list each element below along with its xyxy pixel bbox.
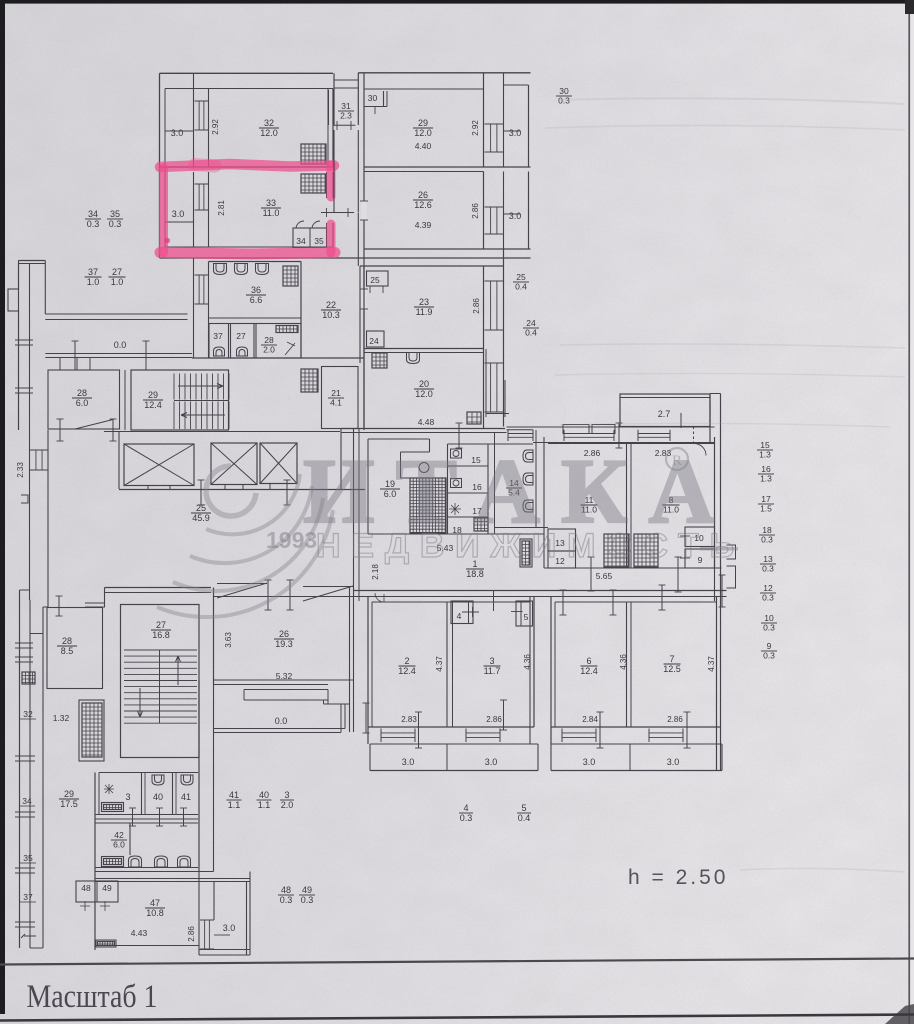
svg-text:1.3: 1.3 — [759, 450, 771, 460]
svg-text:25: 25 — [196, 503, 206, 513]
svg-text:9: 9 — [767, 641, 772, 651]
svg-text:1.0: 1.0 — [111, 277, 124, 287]
svg-text:37: 37 — [88, 267, 98, 277]
svg-text:16.8: 16.8 — [152, 630, 170, 640]
svg-text:3.0: 3.0 — [402, 757, 415, 767]
svg-text:29: 29 — [418, 118, 428, 128]
svg-text:1.1: 1.1 — [258, 800, 271, 810]
svg-text:22: 22 — [326, 300, 336, 310]
svg-text:R: R — [672, 453, 682, 469]
svg-text:12.0: 12.0 — [414, 128, 432, 138]
svg-text:32: 32 — [23, 709, 33, 719]
svg-text:34: 34 — [88, 209, 98, 219]
svg-text:4: 4 — [463, 803, 468, 813]
svg-text:25: 25 — [516, 272, 526, 282]
svg-text:0.4: 0.4 — [525, 328, 537, 338]
svg-text:16: 16 — [761, 464, 771, 474]
svg-text:0.3: 0.3 — [762, 564, 774, 574]
svg-text:4.36: 4.36 — [523, 654, 532, 670]
svg-text:28: 28 — [62, 636, 72, 646]
svg-text:41: 41 — [229, 790, 239, 800]
svg-text:4.43: 4.43 — [131, 928, 148, 938]
svg-text:0.3: 0.3 — [763, 623, 775, 633]
svg-text:2.0: 2.0 — [281, 800, 294, 810]
svg-text:18.8: 18.8 — [466, 569, 484, 579]
svg-text:35: 35 — [23, 853, 33, 863]
svg-text:2.7: 2.7 — [658, 409, 671, 419]
svg-text:12.0: 12.0 — [415, 389, 433, 399]
svg-text:24: 24 — [526, 318, 536, 328]
svg-text:4.1: 4.1 — [330, 398, 342, 408]
svg-text:3.0: 3.0 — [223, 923, 236, 933]
svg-text:19.3: 19.3 — [275, 639, 293, 649]
svg-text:48: 48 — [281, 885, 291, 895]
svg-text:11.9: 11.9 — [416, 307, 433, 317]
svg-text:12.4: 12.4 — [398, 666, 416, 676]
svg-text:3.0: 3.0 — [667, 757, 680, 767]
svg-text:24: 24 — [369, 336, 379, 346]
svg-text:8.5: 8.5 — [61, 646, 74, 656]
svg-text:0.0: 0.0 — [114, 340, 127, 350]
svg-text:2.84: 2.84 — [582, 715, 598, 724]
svg-text:3.63: 3.63 — [224, 632, 233, 648]
svg-text:5.32: 5.32 — [276, 671, 293, 681]
svg-text:2.86: 2.86 — [667, 715, 683, 724]
svg-text:35: 35 — [314, 236, 324, 246]
svg-text:2.81: 2.81 — [217, 200, 226, 216]
svg-text:4.48: 4.48 — [418, 417, 435, 427]
svg-text:1.1: 1.1 — [228, 800, 241, 810]
svg-text:0.3: 0.3 — [761, 535, 773, 545]
svg-text:11.7: 11.7 — [484, 666, 501, 676]
svg-text:1.5: 1.5 — [760, 504, 772, 514]
svg-text:2.92: 2.92 — [211, 119, 220, 135]
svg-text:47: 47 — [150, 898, 160, 908]
svg-text:5: 5 — [521, 803, 526, 813]
svg-text:3: 3 — [125, 792, 130, 802]
svg-text:28: 28 — [77, 388, 87, 398]
svg-text:12: 12 — [763, 583, 773, 593]
svg-text:30: 30 — [368, 93, 378, 103]
svg-text:2.83: 2.83 — [401, 715, 417, 724]
svg-text:0.4: 0.4 — [518, 813, 531, 823]
svg-text:6: 6 — [586, 656, 591, 666]
svg-text:3.0: 3.0 — [509, 211, 522, 221]
svg-text:37: 37 — [213, 331, 223, 341]
svg-text:49: 49 — [302, 885, 312, 895]
svg-text:29: 29 — [64, 789, 74, 799]
svg-text:0.3: 0.3 — [460, 813, 473, 823]
svg-text:6.0: 6.0 — [384, 489, 397, 499]
svg-text:10.3: 10.3 — [322, 310, 340, 320]
svg-text:11.0: 11.0 — [263, 208, 280, 218]
svg-text:27: 27 — [236, 331, 246, 341]
svg-text:3.0: 3.0 — [583, 757, 596, 767]
svg-text:4: 4 — [457, 611, 462, 621]
svg-text:41: 41 — [181, 792, 191, 802]
svg-text:0.0: 0.0 — [275, 716, 288, 726]
svg-text:26: 26 — [279, 629, 289, 639]
svg-text:12.6: 12.6 — [414, 200, 432, 210]
svg-text:1.0: 1.0 — [87, 277, 100, 287]
svg-text:17.5: 17.5 — [60, 799, 78, 809]
svg-text:36: 36 — [251, 285, 261, 295]
svg-text:12.0: 12.0 — [260, 128, 278, 138]
svg-text:3.0: 3.0 — [171, 128, 184, 138]
svg-text:3.0: 3.0 — [485, 757, 498, 767]
svg-text:19: 19 — [385, 479, 395, 489]
svg-text:10.8: 10.8 — [146, 908, 164, 918]
svg-text:0.3: 0.3 — [301, 895, 314, 905]
svg-text:34: 34 — [296, 236, 306, 246]
svg-text:23: 23 — [419, 297, 429, 307]
svg-text:12.4: 12.4 — [580, 666, 598, 676]
svg-text:10: 10 — [764, 613, 774, 623]
svg-text:15: 15 — [760, 440, 770, 450]
svg-text:4.39: 4.39 — [415, 220, 432, 230]
svg-text:2.86: 2.86 — [471, 203, 480, 219]
svg-text:12.5: 12.5 — [663, 664, 681, 674]
svg-text:2.33: 2.33 — [16, 462, 25, 478]
svg-text:6.6: 6.6 — [250, 295, 263, 305]
svg-text:5: 5 — [524, 612, 529, 622]
svg-text:26: 26 — [418, 190, 428, 200]
svg-text:35: 35 — [110, 209, 120, 219]
svg-text:4.40: 4.40 — [415, 141, 432, 151]
svg-text:1.3: 1.3 — [760, 474, 772, 484]
svg-text:3: 3 — [489, 656, 494, 666]
svg-text:6.0: 6.0 — [76, 398, 89, 408]
svg-text:12.4: 12.4 — [144, 400, 162, 410]
svg-text:3: 3 — [284, 790, 289, 800]
svg-text:3.0: 3.0 — [509, 128, 522, 138]
svg-text:2: 2 — [404, 656, 409, 666]
svg-text:27: 27 — [156, 620, 166, 630]
svg-text:Масштаб 1: Масштаб 1 — [27, 979, 158, 1015]
svg-text:25: 25 — [370, 275, 380, 285]
svg-text:2.18: 2.18 — [371, 564, 380, 580]
svg-text:29: 29 — [148, 390, 158, 400]
svg-text:0.3: 0.3 — [87, 219, 100, 229]
svg-text:31: 31 — [341, 101, 351, 111]
svg-text:40: 40 — [259, 790, 269, 800]
svg-text:30: 30 — [559, 86, 569, 96]
svg-text:1993: 1993 — [266, 527, 317, 553]
svg-text:2.0: 2.0 — [263, 345, 275, 355]
svg-text:0.4: 0.4 — [515, 282, 527, 292]
svg-text:4.37: 4.37 — [435, 656, 444, 672]
svg-text:18: 18 — [762, 525, 772, 535]
svg-text:1.32: 1.32 — [53, 713, 70, 723]
svg-text:2.86: 2.86 — [187, 926, 196, 942]
svg-text:20: 20 — [419, 379, 429, 389]
svg-text:48: 48 — [81, 883, 91, 893]
svg-text:32: 32 — [264, 118, 274, 128]
svg-text:3.0: 3.0 — [172, 209, 185, 219]
svg-text:0.3: 0.3 — [762, 593, 774, 603]
svg-text:13: 13 — [763, 554, 773, 564]
svg-text:21: 21 — [331, 388, 341, 398]
svg-text:7: 7 — [669, 654, 674, 664]
svg-text:34: 34 — [22, 796, 32, 806]
svg-text:2.86: 2.86 — [486, 715, 502, 724]
svg-text:4.37: 4.37 — [707, 656, 716, 672]
svg-text:33: 33 — [266, 198, 276, 208]
svg-text:6.0: 6.0 — [113, 840, 125, 850]
svg-text:42: 42 — [114, 830, 124, 840]
svg-text:45.9: 45.9 — [192, 513, 210, 523]
svg-text:0.3: 0.3 — [109, 219, 122, 229]
svg-text:0.3: 0.3 — [763, 651, 775, 661]
svg-text:37: 37 — [23, 892, 33, 902]
svg-text:17: 17 — [761, 494, 771, 504]
svg-text:2.86: 2.86 — [472, 298, 481, 314]
svg-text:40: 40 — [153, 792, 163, 802]
svg-text:0.3: 0.3 — [280, 895, 293, 905]
svg-text:5.65: 5.65 — [596, 571, 613, 581]
svg-text:27: 27 — [112, 267, 122, 277]
svg-text:h = 2.50: h = 2.50 — [628, 866, 728, 889]
svg-text:2.3: 2.3 — [340, 111, 352, 121]
svg-text:28: 28 — [264, 335, 274, 345]
svg-text:2.92: 2.92 — [471, 120, 480, 136]
svg-text:49: 49 — [102, 883, 112, 893]
